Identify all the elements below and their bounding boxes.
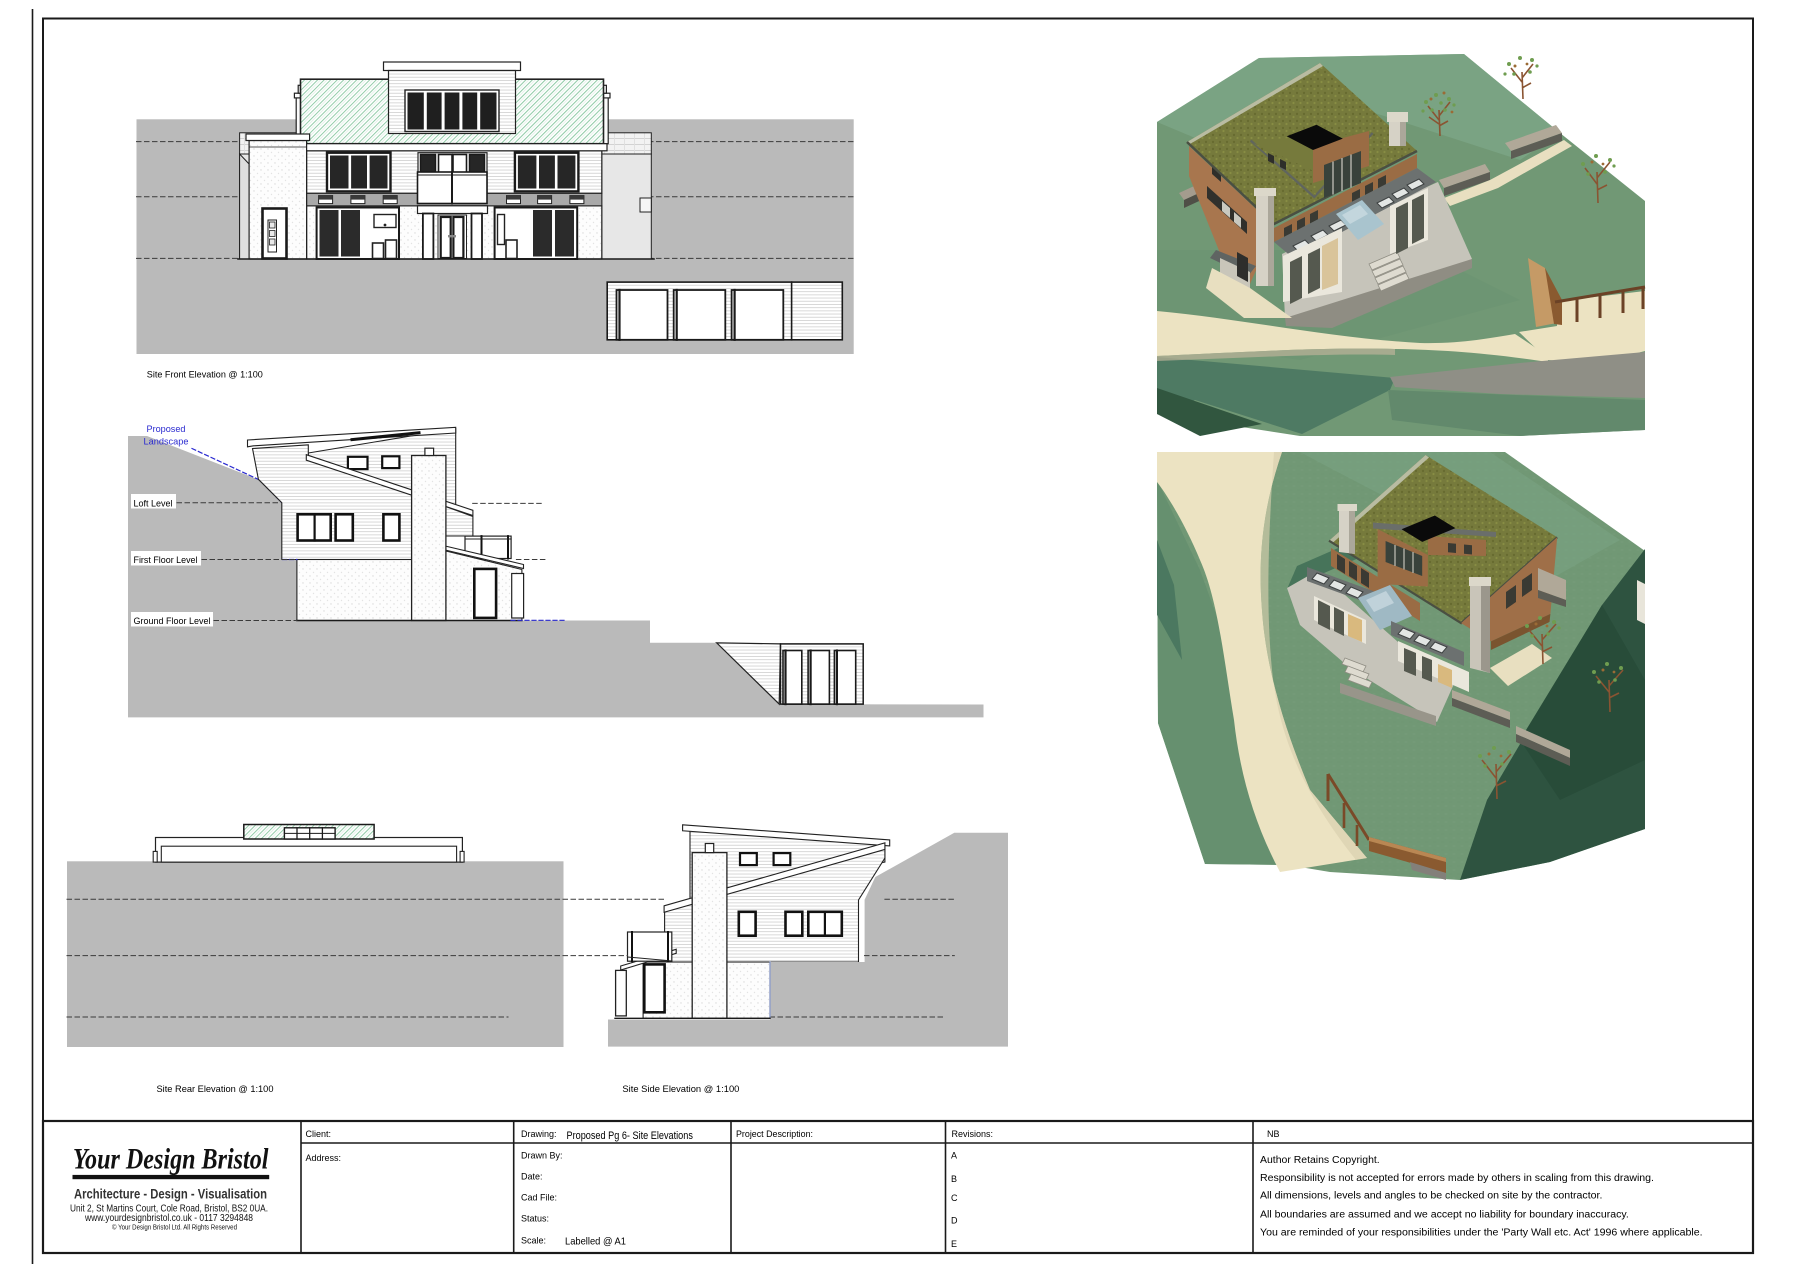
svg-text:All dimensions, levels and ang: All dimensions, levels and angles to be … bbox=[1260, 1191, 1602, 1202]
svg-text:Labelled @ A1: Labelled @ A1 bbox=[565, 1236, 626, 1248]
svg-text:Proposed Pg 6- Site Elevations: Proposed Pg 6- Site Elevations bbox=[567, 1130, 694, 1142]
svg-text:Architecture - Design - Visual: Architecture - Design - Visualisation bbox=[74, 1186, 267, 1202]
svg-text:Responsibility is not accepted: Responsibility is not accepted for error… bbox=[1260, 1173, 1654, 1184]
svg-text:Site Side Elevation @ 1:100: Site Side Elevation @ 1:100 bbox=[622, 1084, 739, 1095]
svg-text:Author Retains Copyright.: Author Retains Copyright. bbox=[1260, 1155, 1380, 1166]
svg-text:Site Rear Elevation @ 1:100: Site Rear Elevation @ 1:100 bbox=[157, 1084, 274, 1095]
svg-text:www.yourdesignbristol.co.uk -: www.yourdesignbristol.co.uk - 0117 32948… bbox=[84, 1213, 253, 1224]
svg-text:Date:: Date: bbox=[521, 1172, 543, 1182]
svg-text:Drawn By:: Drawn By: bbox=[521, 1151, 563, 1161]
svg-text:Loft Level: Loft Level bbox=[134, 499, 173, 510]
svg-text:Revisions:: Revisions: bbox=[952, 1129, 994, 1139]
svg-text:© Your Design Bristol Ltd. All: © Your Design Bristol Ltd. All Rights Re… bbox=[112, 1224, 237, 1232]
svg-text:Site Front Elevation @ 1:100: Site Front Elevation @ 1:100 bbox=[147, 370, 263, 381]
svg-text:You are reminded of your respo: You are reminded of your responsibilitie… bbox=[1260, 1227, 1703, 1238]
svg-text:First Floor Level: First Floor Level bbox=[134, 555, 198, 566]
svg-text:Cad File:: Cad File: bbox=[521, 1193, 557, 1203]
svg-text:Your Design Bristol: Your Design Bristol bbox=[73, 1143, 269, 1176]
svg-text:Scale:: Scale: bbox=[521, 1236, 546, 1246]
svg-text:C: C bbox=[951, 1193, 958, 1203]
svg-text:Drawing:: Drawing: bbox=[521, 1129, 557, 1139]
svg-text:D: D bbox=[951, 1216, 958, 1226]
svg-text:Address:: Address: bbox=[306, 1153, 342, 1163]
svg-text:Project Description:: Project Description: bbox=[736, 1129, 813, 1139]
svg-text:E: E bbox=[951, 1239, 957, 1249]
svg-text:A: A bbox=[951, 1151, 957, 1161]
svg-text:Proposed: Proposed bbox=[147, 424, 186, 435]
svg-text:Client:: Client: bbox=[306, 1129, 332, 1139]
svg-text:All boundaries are assumed and: All boundaries are assumed and we accept… bbox=[1260, 1210, 1629, 1221]
svg-text:Status:: Status: bbox=[521, 1214, 549, 1224]
svg-text:NB: NB bbox=[1267, 1129, 1280, 1139]
svg-text:Landscape: Landscape bbox=[144, 437, 189, 448]
svg-text:Ground Floor Level: Ground Floor Level bbox=[134, 616, 211, 627]
svg-text:B: B bbox=[951, 1174, 957, 1184]
